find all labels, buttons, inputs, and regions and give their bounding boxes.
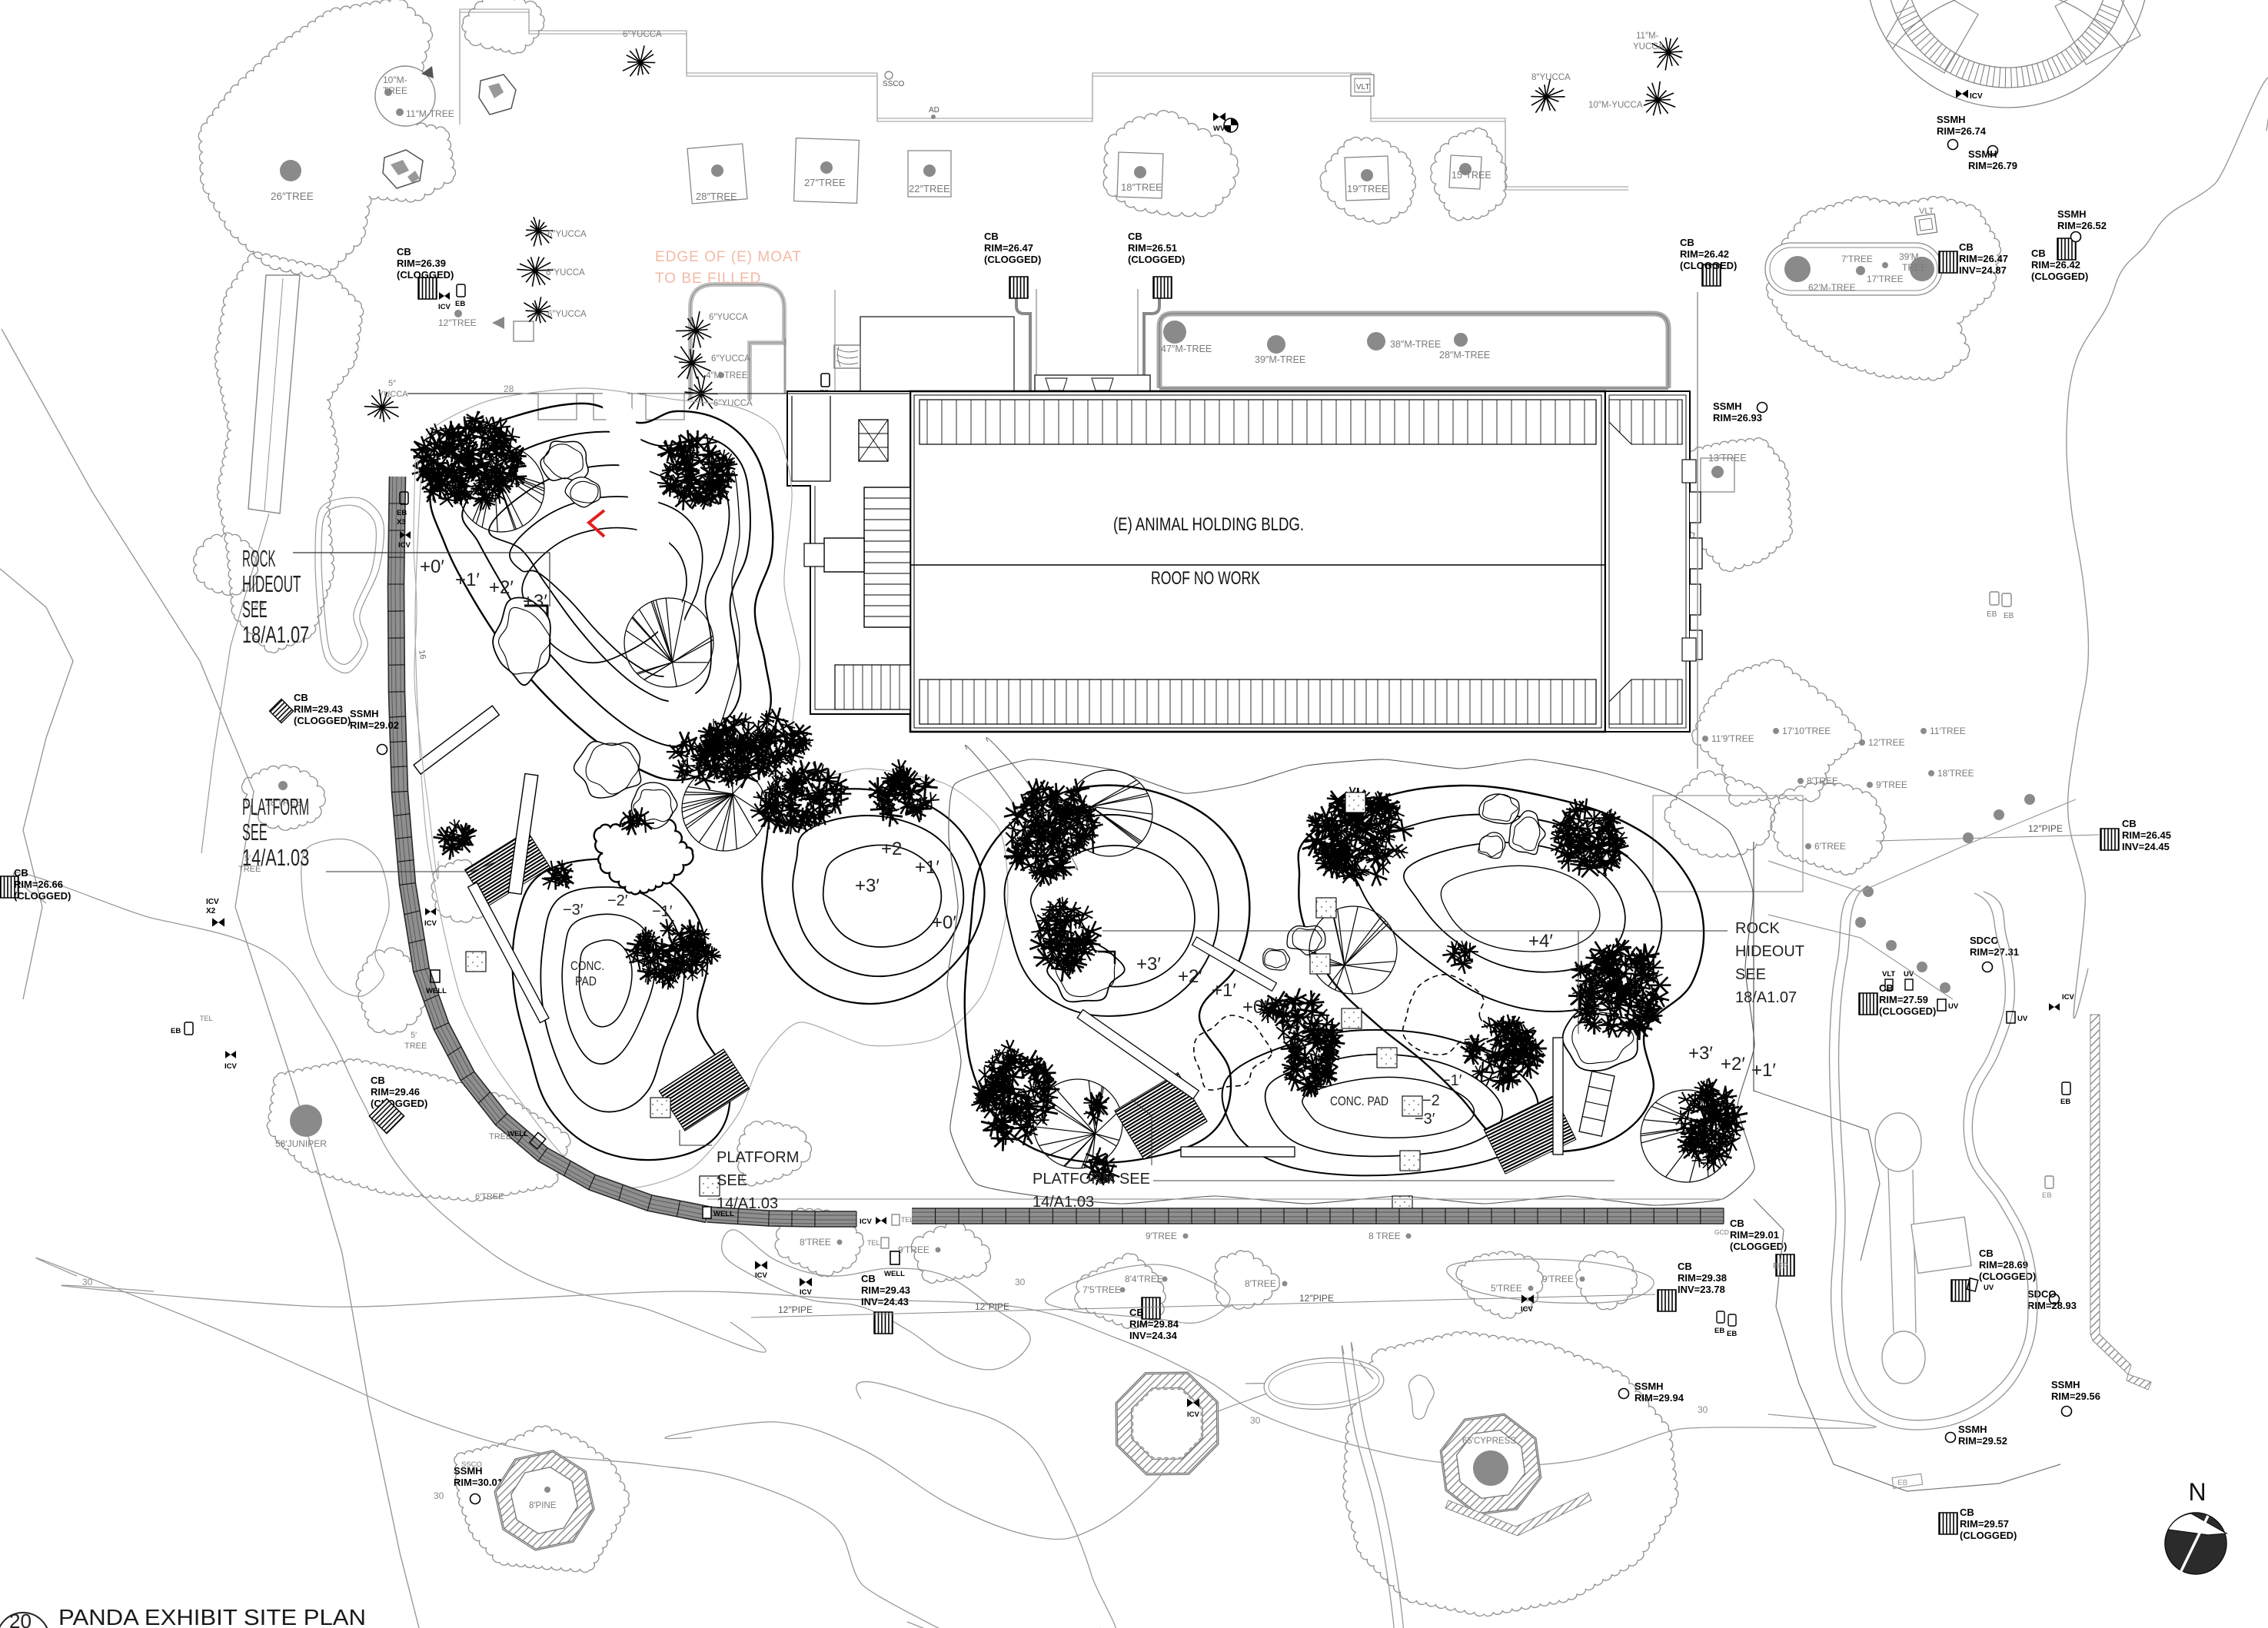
svg-text:RIM=27.59: RIM=27.59: [1879, 994, 1928, 1005]
svg-text:RIM=26.42: RIM=26.42: [1680, 248, 1729, 260]
svg-text:5′: 5′: [411, 1031, 417, 1040]
svg-text:28″M-TREE: 28″M-TREE: [1439, 350, 1490, 360]
svg-text:22″TREE: 22″TREE: [909, 183, 950, 194]
svg-text:CB: CB: [984, 231, 999, 242]
svg-text:UV: UV: [1904, 970, 1914, 978]
svg-text:RIM=26.42: RIM=26.42: [2031, 259, 2080, 271]
svg-text:9′TREE: 9′TREE: [898, 1244, 929, 1255]
svg-text:EB: EB: [1727, 1330, 1737, 1338]
svg-text:WELL: WELL: [426, 987, 447, 995]
svg-text:12″PIPE: 12″PIPE: [1299, 1293, 1334, 1304]
svg-text:7′5′TREE: 7′5′TREE: [1082, 1284, 1121, 1295]
svg-text:RIM=29.43: RIM=29.43: [861, 1284, 910, 1296]
svg-text:8′TREE: 8′TREE: [1245, 1278, 1276, 1289]
svg-text:CB: CB: [1678, 1261, 1692, 1272]
svg-text:−3′: −3′: [563, 902, 584, 919]
svg-text:CONC. PAD: CONC. PAD: [1330, 1094, 1388, 1108]
svg-text:ICV: ICV: [398, 541, 411, 550]
svg-text:INV=24.34: INV=24.34: [1129, 1330, 1178, 1341]
svg-text:RIM=26.66: RIM=26.66: [14, 879, 63, 890]
svg-text:CB: CB: [14, 867, 28, 879]
svg-text:RIM=29.94: RIM=29.94: [1634, 1392, 1684, 1404]
svg-text:EB: EB: [1987, 610, 1997, 619]
svg-text:SSMH: SSMH: [1958, 1424, 1987, 1435]
svg-text:+0′: +0′: [420, 557, 444, 577]
svg-text:AD: AD: [929, 106, 939, 115]
svg-text:VLT: VLT: [1919, 207, 1934, 216]
svg-text:SSMH: SSMH: [2051, 1379, 2080, 1390]
svg-text:UV: UV: [2017, 1015, 2028, 1023]
svg-text:PAD: PAD: [575, 974, 597, 988]
svg-text:ICV: ICV: [224, 1062, 238, 1071]
svg-text:RIM=29.52: RIM=29.52: [1958, 1435, 2007, 1447]
svg-text:8′PINE: 8′PINE: [529, 1501, 557, 1510]
svg-text:BFP: BFP: [1773, 1262, 1788, 1271]
svg-text:26″TREE: 26″TREE: [271, 191, 314, 202]
svg-text:CB: CB: [294, 692, 308, 703]
svg-text:11″M-TREE: 11″M-TREE: [406, 108, 454, 119]
svg-text:(CLOGGED): (CLOGGED): [294, 715, 351, 726]
svg-text:7′TREE: 7′TREE: [1841, 254, 1873, 264]
svg-text:CB: CB: [1730, 1218, 1744, 1229]
svg-text:EB: EB: [2004, 612, 2014, 620]
svg-text:11′TREE: 11′TREE: [1930, 726, 1966, 736]
svg-text:+2′: +2′: [1721, 1054, 1745, 1075]
svg-text:RIM=29.46: RIM=29.46: [371, 1086, 420, 1098]
svg-text:39′M-: 39′M-: [1899, 251, 1922, 262]
svg-text:18″TREE: 18″TREE: [1121, 181, 1162, 193]
svg-text:TEL: TEL: [200, 1015, 213, 1022]
svg-text:RIM=29.01: RIM=29.01: [1730, 1229, 1779, 1241]
svg-text:12″TREE: 12″TREE: [438, 317, 477, 328]
svg-text:CB: CB: [1960, 1507, 1974, 1518]
svg-text:11′9′TREE: 11′9′TREE: [1711, 733, 1754, 744]
svg-text:RIM=26.47: RIM=26.47: [1959, 253, 2008, 264]
svg-text:9′TREE: 9′TREE: [1146, 1231, 1177, 1241]
svg-text:SSMH: SSMH: [350, 708, 379, 719]
svg-text:6″YUCCA: 6″YUCCA: [623, 30, 662, 39]
svg-text:4″M-TREE: 4″M-TREE: [706, 371, 748, 380]
svg-text:RIM=29.84: RIM=29.84: [1129, 1318, 1179, 1330]
svg-text:SEE: SEE: [717, 1172, 747, 1189]
svg-text:(CLOGGED): (CLOGGED): [1128, 254, 1185, 265]
svg-text:EB: EB: [171, 1027, 181, 1035]
svg-text:16: 16: [417, 649, 427, 660]
svg-text:RIM=26.39: RIM=26.39: [397, 257, 446, 269]
svg-text:PLATFORM: PLATFORM: [717, 1149, 799, 1166]
svg-text:UV: UV: [1984, 1284, 1994, 1292]
svg-text:30: 30: [1250, 1415, 1261, 1426]
svg-text:6″YUCCA: 6″YUCCA: [547, 230, 587, 239]
svg-text:EB: EB: [2042, 1191, 2052, 1200]
svg-text:8 TREE: 8 TREE: [1368, 1231, 1401, 1241]
svg-text:+1′: +1′: [915, 857, 939, 878]
svg-text:INV=24.45: INV=24.45: [2122, 841, 2170, 852]
svg-text:SEE: SEE: [242, 819, 268, 846]
svg-text:13′TREE: 13′TREE: [1708, 453, 1747, 463]
svg-text:PLATFORM: PLATFORM: [242, 793, 309, 820]
svg-text:CB: CB: [1979, 1248, 1994, 1259]
svg-text:RIM=26.52: RIM=26.52: [2057, 220, 2107, 231]
svg-text:X2: X2: [206, 907, 216, 915]
svg-text:11″M-: 11″M-: [1636, 32, 1659, 41]
svg-text:CB: CB: [371, 1075, 385, 1086]
svg-text:6″YUCCA: 6″YUCCA: [713, 399, 753, 408]
svg-text:RIM=26.93: RIM=26.93: [1713, 412, 1762, 424]
svg-text:5″: 5″: [388, 379, 396, 388]
svg-text:ICV: ICV: [2062, 993, 2075, 1002]
svg-text:30: 30: [82, 1277, 93, 1287]
svg-text:CB: CB: [397, 246, 411, 257]
svg-text:EB: EB: [397, 509, 407, 517]
svg-text:(CLOGGED): (CLOGGED): [2031, 271, 2088, 282]
svg-text:6″YUCCA: 6″YUCCA: [711, 354, 750, 364]
svg-text:28″TREE: 28″TREE: [696, 191, 737, 202]
svg-text:CB: CB: [1129, 1307, 1144, 1318]
svg-text:EDGE OF (E) MOAT: EDGE OF (E) MOAT: [655, 249, 802, 265]
svg-text:6″YUCCA: 6″YUCCA: [709, 313, 748, 322]
svg-text:+0′: +0′: [932, 912, 956, 933]
svg-text:−2′: −2′: [607, 892, 628, 909]
svg-text:VLT: VLT: [1356, 83, 1370, 91]
svg-text:RIM=30.01: RIM=30.01: [454, 1477, 503, 1488]
svg-text:EB: EB: [2060, 1098, 2070, 1106]
svg-text:CB: CB: [1959, 241, 1974, 253]
svg-text:WELL: WELL: [884, 1270, 905, 1278]
svg-text:UV: UV: [1948, 1002, 1959, 1011]
svg-text:8′4′TREE: 8′4′TREE: [1125, 1274, 1163, 1284]
svg-text:YUCCA: YUCCA: [1633, 42, 1664, 51]
svg-text:ROCK: ROCK: [1735, 920, 1780, 937]
svg-text:+3′: +3′: [855, 875, 880, 896]
svg-text:8″YUCCA: 8″YUCCA: [1531, 73, 1571, 82]
svg-text:EB: EB: [1714, 1327, 1724, 1335]
svg-text:30: 30: [434, 1490, 444, 1501]
svg-text:5′: 5′: [244, 854, 251, 863]
svg-text:SDCO: SDCO: [2027, 1288, 2057, 1300]
svg-text:(CLOGGED): (CLOGGED): [1680, 260, 1737, 271]
svg-text:WV: WV: [1213, 125, 1225, 133]
svg-text:8′TREE: 8′TREE: [800, 1237, 831, 1248]
svg-text:12″PIPE: 12″PIPE: [778, 1304, 813, 1315]
svg-text:+3′: +3′: [523, 591, 547, 612]
svg-text:+2′: +2′: [489, 577, 514, 598]
svg-text:TREE: TREE: [404, 1042, 427, 1051]
svg-text:17′TREE: 17′TREE: [1867, 274, 1904, 284]
svg-text:30: 30: [1015, 1277, 1026, 1287]
svg-text:ICV: ICV: [1187, 1410, 1200, 1419]
svg-text:28: 28: [504, 384, 514, 394]
svg-text:CB: CB: [861, 1273, 876, 1284]
svg-text:+1′: +1′: [1212, 980, 1236, 1001]
svg-text:(CLOGGED): (CLOGGED): [984, 254, 1041, 265]
svg-text:9′TREE: 9′TREE: [1542, 1274, 1574, 1284]
svg-text:(E) ANIMAL HOLDING BLDG.: (E) ANIMAL HOLDING BLDG.: [1113, 514, 1304, 535]
svg-text:47″M-TREE: 47″M-TREE: [1161, 344, 1212, 354]
svg-text:7: 7: [496, 1121, 500, 1131]
svg-text:TREE: TREE: [238, 865, 261, 874]
svg-text:RIM=29.56: RIM=29.56: [2051, 1390, 2100, 1402]
svg-text:+1′: +1′: [1751, 1060, 1776, 1081]
svg-text:RIM=29.57: RIM=29.57: [1960, 1518, 2009, 1530]
svg-text:X3: X3: [397, 518, 406, 527]
svg-text:ICV: ICV: [755, 1271, 768, 1280]
svg-text:SSMH: SSMH: [1713, 400, 1742, 412]
svg-text:SDCO: SDCO: [1970, 935, 1999, 946]
svg-text:15″TREE: 15″TREE: [1452, 170, 1491, 181]
svg-text:10″M-YUCCA: 10″M-YUCCA: [1588, 101, 1643, 110]
svg-text:14/A1.03: 14/A1.03: [1033, 1194, 1094, 1211]
svg-text:SSCO: SSCO: [883, 80, 905, 88]
svg-text:HIDEOUT: HIDEOUT: [1735, 943, 1804, 960]
svg-text:27″TREE: 27″TREE: [804, 177, 846, 188]
svg-text:RIM=28.93: RIM=28.93: [2027, 1300, 2077, 1311]
svg-text:(CLOGGED): (CLOGGED): [1730, 1241, 1787, 1252]
svg-text:6″YUCCA: 6″YUCCA: [547, 310, 587, 319]
svg-text:(CLOGGED): (CLOGGED): [1879, 1005, 1936, 1017]
svg-text:INV=23.78: INV=23.78: [1678, 1284, 1725, 1295]
svg-text:17′10′TREE: 17′10′TREE: [1782, 726, 1831, 736]
svg-text:−2: −2: [1422, 1092, 1440, 1109]
svg-text:8′TREE: 8′TREE: [1807, 776, 1838, 786]
svg-text:(CLOGGED): (CLOGGED): [1960, 1530, 2017, 1541]
svg-text:+3′: +3′: [1136, 954, 1161, 975]
svg-text:+3′: +3′: [1688, 1043, 1713, 1064]
svg-text:TREE: TREE: [489, 1132, 511, 1141]
svg-text:18/A1.07: 18/A1.07: [242, 621, 309, 648]
svg-text:ICV: ICV: [424, 919, 437, 928]
svg-text:INV=24.43: INV=24.43: [861, 1296, 909, 1307]
svg-text:CB: CB: [2122, 818, 2137, 829]
svg-text:SEE: SEE: [242, 596, 268, 623]
svg-text:ROCK: ROCK: [242, 545, 276, 572]
svg-text:18/A1.07: 18/A1.07: [1735, 989, 1797, 1006]
svg-text:RIM=26.47: RIM=26.47: [984, 242, 1033, 254]
svg-text:ICV: ICV: [206, 898, 219, 906]
svg-text:EB: EB: [455, 300, 465, 308]
svg-text:CB: CB: [1680, 237, 1694, 248]
svg-text:TREE: TREE: [383, 85, 407, 96]
svg-text:RIM=29.38: RIM=29.38: [1678, 1272, 1727, 1284]
svg-text:+2′: +2′: [1178, 966, 1202, 987]
svg-text:SSMH: SSMH: [1968, 148, 1997, 160]
svg-text:19″TREE: 19″TREE: [1347, 183, 1388, 194]
svg-text:6′TREE: 6′TREE: [475, 1192, 504, 1201]
svg-text:10″M-: 10″M-: [383, 75, 407, 85]
svg-text:N: N: [2188, 1478, 2206, 1506]
svg-text:20: 20: [9, 1610, 32, 1628]
svg-text:CB: CB: [2031, 248, 2046, 259]
svg-text:PLATFORM SEE: PLATFORM SEE: [1033, 1171, 1150, 1188]
svg-text:(CLOGGED): (CLOGGED): [397, 269, 454, 281]
svg-text:SEE: SEE: [1735, 966, 1766, 983]
svg-text:ICV: ICV: [438, 303, 451, 311]
svg-text:6″YUCCA: 6″YUCCA: [546, 268, 585, 277]
svg-text:RIM=29.02: RIM=29.02: [350, 719, 399, 731]
svg-text:12″PIPE: 12″PIPE: [975, 1301, 1009, 1312]
svg-text:VLT: VLT: [1882, 970, 1895, 978]
svg-text:ICV: ICV: [800, 1288, 813, 1297]
svg-text:SSCO: SSCO: [461, 1460, 482, 1469]
svg-text:RIM=26.79: RIM=26.79: [1968, 160, 2017, 171]
svg-text:RIM=28.69: RIM=28.69: [1979, 1259, 2028, 1271]
svg-text:ICV: ICV: [1970, 92, 1983, 101]
svg-text:18′TREE: 18′TREE: [1937, 768, 1974, 779]
svg-text:39″M-TREE: 39″M-TREE: [1255, 354, 1305, 365]
svg-text:HIDEOUT: HIDEOUT: [242, 570, 301, 597]
svg-text:ICV: ICV: [860, 1218, 873, 1226]
svg-text:12″PIPE: 12″PIPE: [2028, 823, 2063, 834]
svg-text:−1′: −1′: [652, 903, 673, 920]
svg-text:PANDA EXHIBIT SITE PLAN: PANDA EXHIBIT SITE PLAN: [58, 1606, 366, 1628]
svg-text:TEL: TEL: [901, 1216, 914, 1224]
svg-text:12′TREE: 12′TREE: [1868, 737, 1905, 748]
svg-text:TEL: TEL: [867, 1239, 880, 1247]
svg-text:EB: EB: [1897, 1479, 1908, 1487]
svg-text:RIM=26.45: RIM=26.45: [2122, 829, 2171, 841]
svg-text:CB: CB: [1879, 982, 1894, 994]
svg-text:30: 30: [1698, 1404, 1708, 1415]
svg-text:RIM=26.51: RIM=26.51: [1128, 242, 1177, 254]
svg-text:ICV: ICV: [1521, 1305, 1534, 1314]
svg-text:SSMH: SSMH: [1937, 114, 1966, 125]
svg-text:−1′: −1′: [1442, 1072, 1462, 1089]
svg-text:5′TREE: 5′TREE: [1491, 1283, 1522, 1294]
svg-text:TREE: TREE: [1902, 262, 1927, 273]
svg-text:RIM=29.43: RIM=29.43: [294, 703, 343, 715]
svg-text:9′TREE: 9′TREE: [1876, 779, 1907, 790]
svg-text:+2: +2: [881, 839, 902, 859]
svg-text:38″M-TREE: 38″M-TREE: [1390, 339, 1441, 350]
svg-text:INV=24.87: INV=24.87: [1959, 264, 2007, 276]
svg-text:62′M-TREE: 62′M-TREE: [1808, 282, 1856, 293]
svg-text:6′TREE: 6′TREE: [1814, 841, 1846, 852]
svg-text:RIM=26.74: RIM=26.74: [1937, 125, 1987, 137]
svg-text:ROOF NO WORK: ROOF NO WORK: [1151, 568, 1260, 589]
svg-text:WELL: WELL: [713, 1210, 734, 1218]
svg-text:SSMH: SSMH: [2057, 208, 2087, 220]
svg-text:(CLOGGED): (CLOGGED): [14, 890, 71, 902]
svg-text:GCD: GCD: [1714, 1228, 1729, 1236]
svg-text:+1′: +1′: [455, 570, 480, 590]
svg-text:58′JUNIPER: 58′JUNIPER: [275, 1138, 327, 1149]
svg-text:TO BE FILLED: TO BE FILLED: [655, 271, 761, 287]
svg-text:CONC.: CONC.: [570, 959, 604, 973]
svg-text:+4′: +4′: [1528, 931, 1553, 952]
svg-text:SSMH: SSMH: [1634, 1380, 1664, 1392]
svg-text:65′CYPRESS: 65′CYPRESS: [1462, 1437, 1516, 1446]
svg-text:YUCCA: YUCCA: [378, 390, 408, 399]
svg-text:CB: CB: [1128, 231, 1142, 242]
